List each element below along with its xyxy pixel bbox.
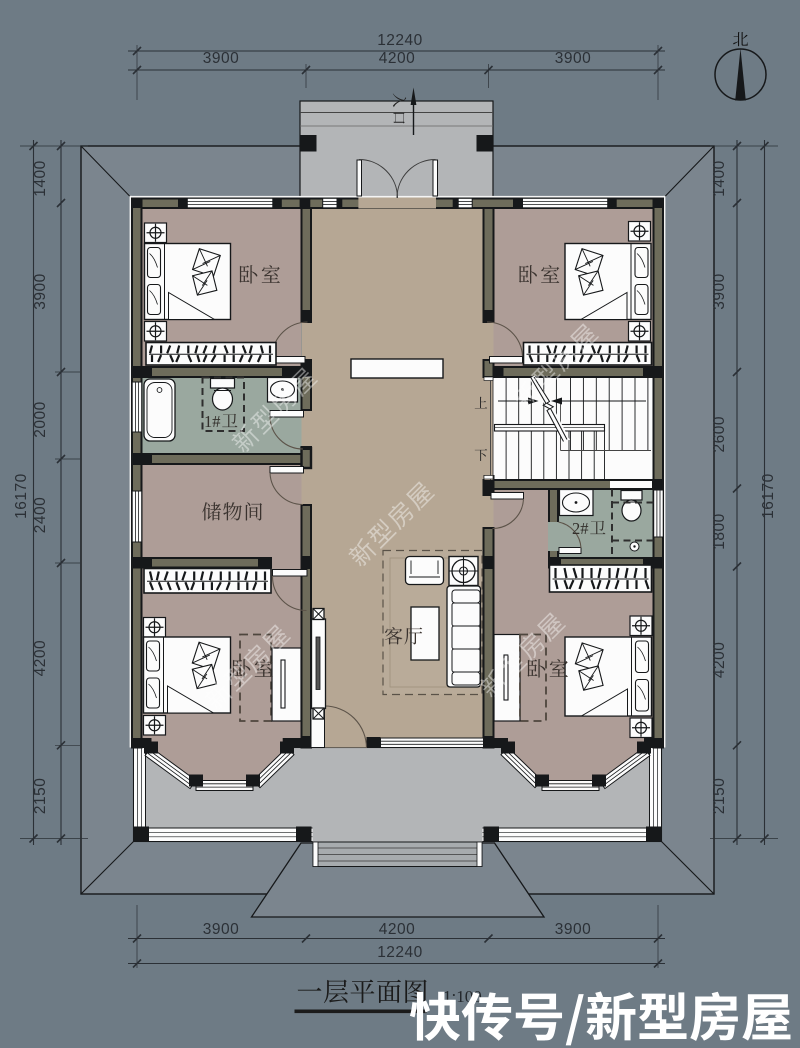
svg-text:4200: 4200 xyxy=(379,50,415,67)
svg-text:2600: 2600 xyxy=(711,416,728,452)
svg-text:12240: 12240 xyxy=(377,944,423,961)
svg-text:2150: 2150 xyxy=(711,778,728,814)
svg-text:1#: 1# xyxy=(204,412,221,431)
svg-text:1400: 1400 xyxy=(711,160,728,196)
svg-text:2#: 2# xyxy=(572,519,589,538)
svg-text:16170: 16170 xyxy=(13,473,30,519)
svg-text:4200: 4200 xyxy=(32,640,49,676)
svg-text:3900: 3900 xyxy=(711,273,728,309)
svg-text:4200: 4200 xyxy=(711,642,728,678)
svg-text:4200: 4200 xyxy=(379,921,415,938)
svg-text:1400: 1400 xyxy=(32,160,49,196)
svg-text:12240: 12240 xyxy=(377,32,423,49)
svg-text:2400: 2400 xyxy=(32,497,49,533)
svg-text:3900: 3900 xyxy=(555,921,591,938)
svg-text:3900: 3900 xyxy=(32,273,49,309)
svg-text:16170: 16170 xyxy=(760,473,777,519)
svg-text:3900: 3900 xyxy=(203,921,239,938)
svg-text:3900: 3900 xyxy=(555,50,591,67)
svg-text:2000: 2000 xyxy=(32,401,49,437)
svg-text:1800: 1800 xyxy=(711,513,728,549)
svg-text:2150: 2150 xyxy=(32,778,49,814)
svg-text:3900: 3900 xyxy=(203,50,239,67)
